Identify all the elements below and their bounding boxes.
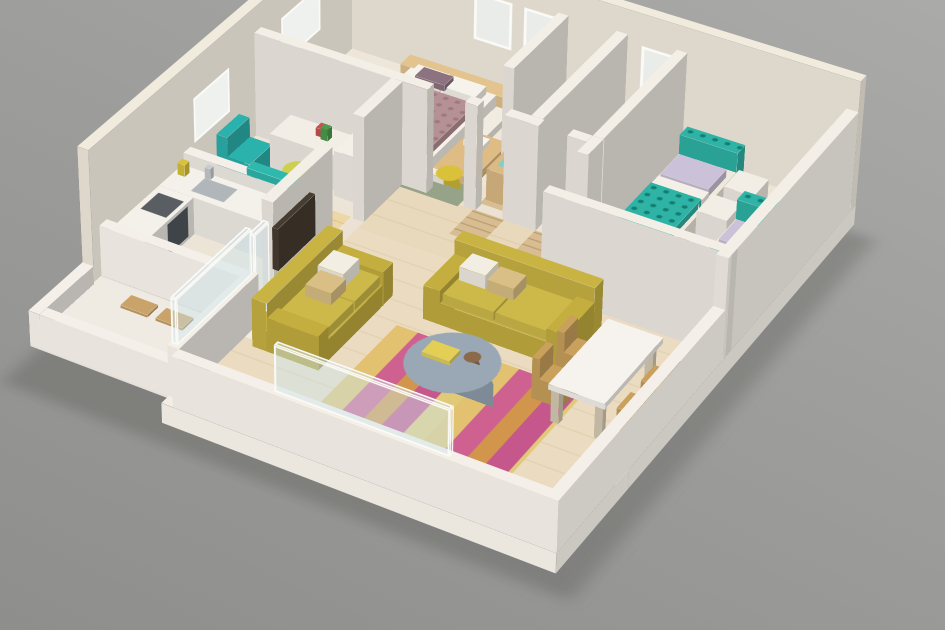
sofa1-backrest-front (252, 298, 267, 352)
wall-study-right-front (353, 114, 364, 222)
wall-bath-front-b-front (502, 115, 538, 231)
render-background (0, 0, 945, 630)
sofa2-arm-west-front (422, 285, 439, 325)
master-window-1 (474, 0, 513, 51)
wall-master-bottom-side (426, 84, 434, 194)
